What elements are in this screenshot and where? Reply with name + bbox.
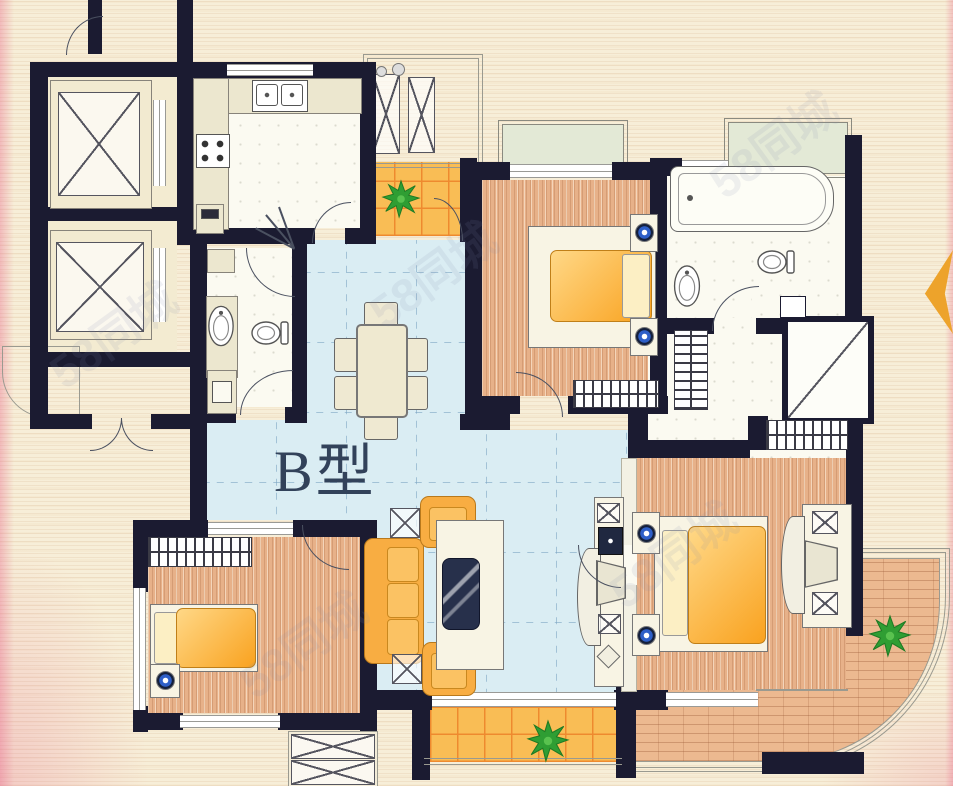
sink-basin-left <box>256 84 278 106</box>
wall-segment <box>360 62 376 240</box>
kitchen-sink <box>252 80 308 112</box>
bedroom-sw-top-window <box>208 522 293 535</box>
sofa-three-seat <box>364 538 424 664</box>
sofa-cushion <box>387 619 419 655</box>
balcony-parapet-bar <box>762 752 864 774</box>
wall-segment <box>748 416 768 450</box>
kitchen-window <box>227 64 313 76</box>
plan-type-label: B型 <box>274 424 377 508</box>
elevator-door-recess-1 <box>153 100 166 186</box>
sofa-cushion <box>387 547 419 582</box>
lamp-icon <box>637 626 656 645</box>
bed-sw-pillow <box>154 612 178 664</box>
cabinet-decor <box>598 614 621 634</box>
wall-segment <box>32 207 190 221</box>
vent-box <box>780 296 806 318</box>
bed-north-pillow <box>622 254 650 318</box>
floor-plan-canvas: B型 58同城 58同城 58同城 58同城 58同城 <box>0 0 953 786</box>
wall-segment <box>190 235 207 425</box>
drying-rack-1 <box>372 74 400 154</box>
dresser-drawer <box>812 592 838 615</box>
wall-segment <box>628 690 668 710</box>
sink-basin-right <box>281 84 303 106</box>
balcony-edge-line <box>424 758 622 765</box>
bedroom-sw-left-window <box>133 588 146 710</box>
lamp-icon <box>635 223 654 242</box>
dresser-seat-inner <box>806 542 837 587</box>
radiator-icon <box>573 380 659 408</box>
faucet-dot-1 <box>376 66 387 77</box>
guest-toilet-icon <box>250 318 290 348</box>
dresser-seat <box>804 540 838 588</box>
air-shaft <box>782 316 874 424</box>
side-table <box>390 508 420 538</box>
ac-unit <box>291 760 375 785</box>
drying-rack-2 <box>408 77 435 153</box>
wall-segment <box>465 162 510 180</box>
radiator-icon <box>766 420 848 450</box>
bath2-toilet-icon <box>756 246 796 278</box>
bedroom-north-window <box>510 164 612 178</box>
paper-tint-bottom-left <box>0 540 150 786</box>
wall-segment <box>190 415 207 525</box>
wall-segment <box>628 414 648 458</box>
side-table <box>392 654 422 684</box>
wall-segment <box>465 396 520 414</box>
wall-segment <box>412 708 430 780</box>
lamp-icon <box>635 327 654 346</box>
plant-icon <box>526 718 570 764</box>
master-balcony-line <box>756 689 848 691</box>
wall-segment <box>367 690 432 710</box>
door-arc-lobby-left <box>90 418 122 451</box>
wall-segment <box>465 162 482 414</box>
bath2-sink-icon <box>670 264 704 308</box>
sofa-cushion <box>387 583 419 618</box>
radiator-icon <box>674 330 708 410</box>
wall-segment <box>460 414 510 430</box>
kitchen-stove <box>196 134 230 168</box>
cabinet-decor <box>597 503 620 523</box>
cabinet-handle <box>201 209 219 219</box>
elevator-car-1 <box>58 92 140 196</box>
dresser-mirror <box>781 516 805 614</box>
wardrobe-hatch <box>148 537 252 567</box>
paper-tint-right <box>945 0 953 786</box>
bedroom-sw-bottom-window <box>180 715 280 728</box>
washer-box <box>207 370 237 414</box>
wall-segment <box>133 520 148 592</box>
wall-segment <box>30 414 92 429</box>
bathtub-drain <box>687 195 693 201</box>
kitchen-cabinet <box>196 204 224 234</box>
lamp-icon <box>156 671 175 690</box>
master-balcony-slider <box>666 692 758 707</box>
door-arc-vestibule <box>66 16 103 55</box>
plant-icon <box>868 614 912 658</box>
wall-segment <box>845 135 862 337</box>
door-arc-lobby-right <box>121 418 153 451</box>
plant-icon <box>381 178 421 220</box>
wall-segment <box>133 713 183 730</box>
wall-segment <box>30 62 195 77</box>
ac-unit <box>291 734 375 759</box>
dresser-drawer <box>812 511 838 534</box>
faucet-dot-2 <box>392 63 405 76</box>
guest-bath-sink-icon <box>207 302 235 350</box>
coffee-table-glass <box>442 558 480 630</box>
dining-table <box>356 324 408 418</box>
south-balcony-tiles <box>430 706 616 762</box>
washer-drum <box>212 381 232 403</box>
guest-bath-shelf <box>207 249 235 273</box>
wall-segment <box>151 414 195 429</box>
